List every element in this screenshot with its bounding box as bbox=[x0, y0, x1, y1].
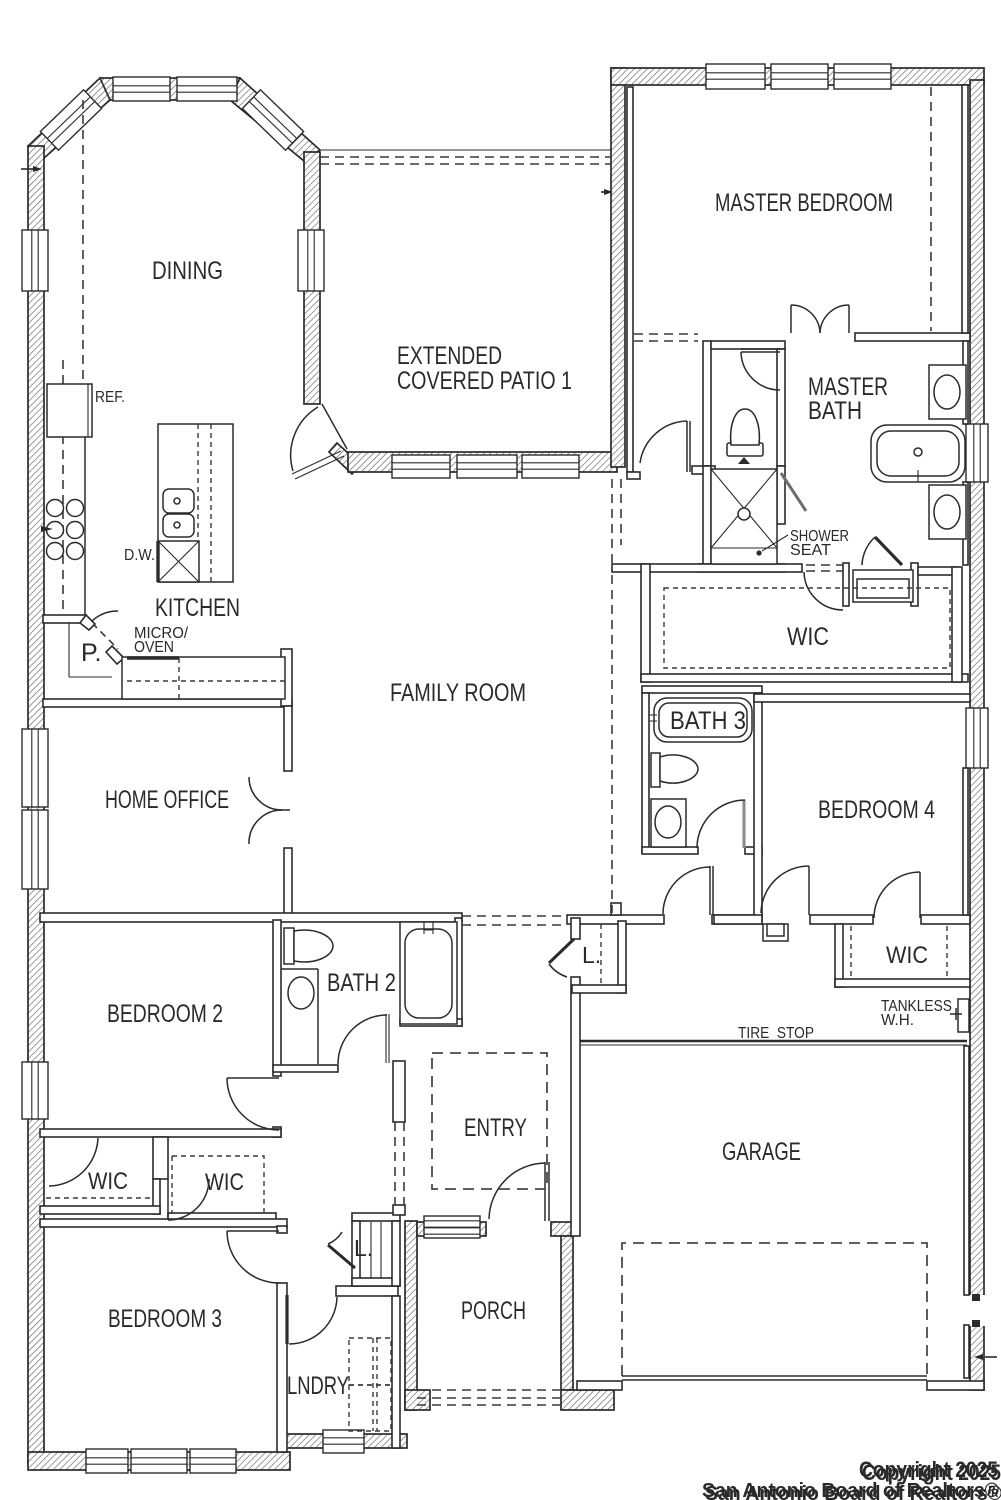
svg-text:LNDRY: LNDRY bbox=[287, 1372, 349, 1400]
svg-text:KITCHEN: KITCHEN bbox=[155, 594, 240, 622]
svg-text:L.: L. bbox=[582, 942, 601, 968]
svg-text:BEDROOM 4: BEDROOM 4 bbox=[818, 796, 935, 824]
svg-text:BEDROOM 2: BEDROOM 2 bbox=[107, 1000, 223, 1028]
svg-text:DINING: DINING bbox=[152, 257, 223, 285]
svg-text:BATH 2: BATH 2 bbox=[327, 969, 396, 997]
svg-text:Copyright 2025: Copyright 2025 bbox=[859, 1457, 998, 1482]
svg-text:P.: P. bbox=[81, 639, 101, 667]
svg-text:W.H.: W.H. bbox=[881, 1012, 914, 1029]
svg-text:HOME OFFICE: HOME OFFICE bbox=[105, 786, 229, 814]
svg-text:TIRE STOP: TIRE STOP bbox=[738, 1025, 814, 1042]
svg-text:COVERED PATIO 1: COVERED PATIO 1 bbox=[397, 367, 572, 395]
svg-text:OVEN: OVEN bbox=[134, 639, 174, 656]
svg-text:EXTENDED: EXTENDED bbox=[397, 342, 502, 370]
svg-text:WIC: WIC bbox=[886, 942, 928, 969]
svg-text:L.: L. bbox=[354, 1235, 373, 1261]
svg-text:FAMILY ROOM: FAMILY ROOM bbox=[390, 679, 526, 707]
svg-text:San Antonio Board of Realtors®: San Antonio Board of Realtors® bbox=[702, 1480, 999, 1500]
svg-text:BATH 3: BATH 3 bbox=[670, 707, 746, 735]
svg-text:WIC: WIC bbox=[205, 1169, 244, 1196]
svg-text:ENTRY: ENTRY bbox=[464, 1114, 527, 1142]
svg-text:BATH: BATH bbox=[808, 397, 862, 425]
svg-text:WIC: WIC bbox=[88, 1168, 128, 1195]
svg-text:PORCH: PORCH bbox=[461, 1297, 526, 1325]
svg-text:SEAT: SEAT bbox=[790, 542, 831, 559]
svg-text:GARAGE: GARAGE bbox=[722, 1138, 801, 1166]
svg-text:BEDROOM 3: BEDROOM 3 bbox=[108, 1305, 222, 1333]
svg-text:MASTER BEDROOM: MASTER BEDROOM bbox=[715, 189, 893, 217]
svg-text:D.W.: D.W. bbox=[124, 547, 155, 564]
svg-text:REF.: REF. bbox=[95, 389, 125, 406]
svg-text:WIC: WIC bbox=[787, 623, 829, 651]
